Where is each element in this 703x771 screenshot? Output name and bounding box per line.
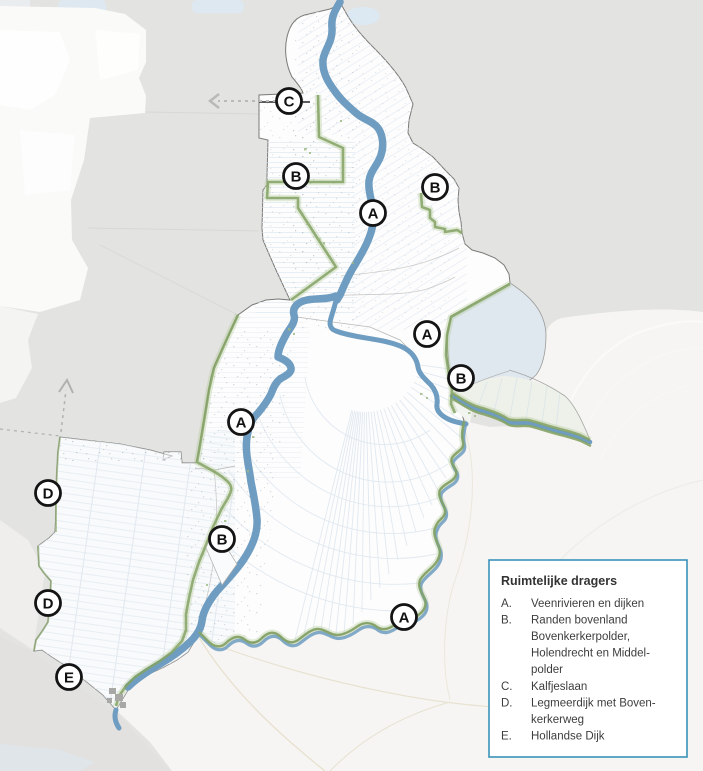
svg-text:A: A: [236, 415, 247, 432]
svg-text:A: A: [399, 610, 410, 627]
svg-text:B.: B.: [501, 615, 512, 627]
svg-text:B: B: [456, 371, 467, 388]
svg-text:A: A: [368, 206, 379, 223]
svg-text:Hollandse Dijk: Hollandse Dijk: [531, 731, 605, 743]
svg-text:C.: C.: [501, 681, 513, 693]
svg-text:Bovenkerkerpolder,: Bovenkerkerpolder,: [531, 631, 630, 643]
svg-text:A: A: [422, 327, 433, 344]
svg-text:polder: polder: [531, 664, 563, 676]
svg-text:Ruimtelijke dragers: Ruimtelijke dragers: [501, 574, 617, 588]
svg-text:D: D: [43, 596, 54, 613]
svg-text:kerkerweg: kerkerweg: [531, 714, 584, 726]
svg-text:Randen bovenland: Randen bovenland: [531, 615, 628, 627]
svg-text:C: C: [284, 94, 295, 111]
svg-text:B: B: [217, 532, 228, 549]
svg-text:Legmeerdijk met Boven-: Legmeerdijk met Boven-: [531, 698, 656, 710]
svg-text:Kalfjeslaan: Kalfjeslaan: [531, 681, 587, 693]
svg-text:D: D: [43, 486, 54, 503]
svg-text:A.: A.: [501, 598, 512, 610]
svg-text:E: E: [64, 670, 74, 687]
svg-text:Holendrecht en Middel-: Holendrecht en Middel-: [531, 648, 650, 660]
svg-text:B: B: [291, 169, 302, 186]
svg-text:E.: E.: [501, 731, 512, 743]
svg-text:B: B: [430, 180, 441, 197]
svg-text:Veenrivieren en dijken: Veenrivieren en dijken: [531, 598, 644, 610]
svg-text:D.: D.: [501, 698, 513, 710]
